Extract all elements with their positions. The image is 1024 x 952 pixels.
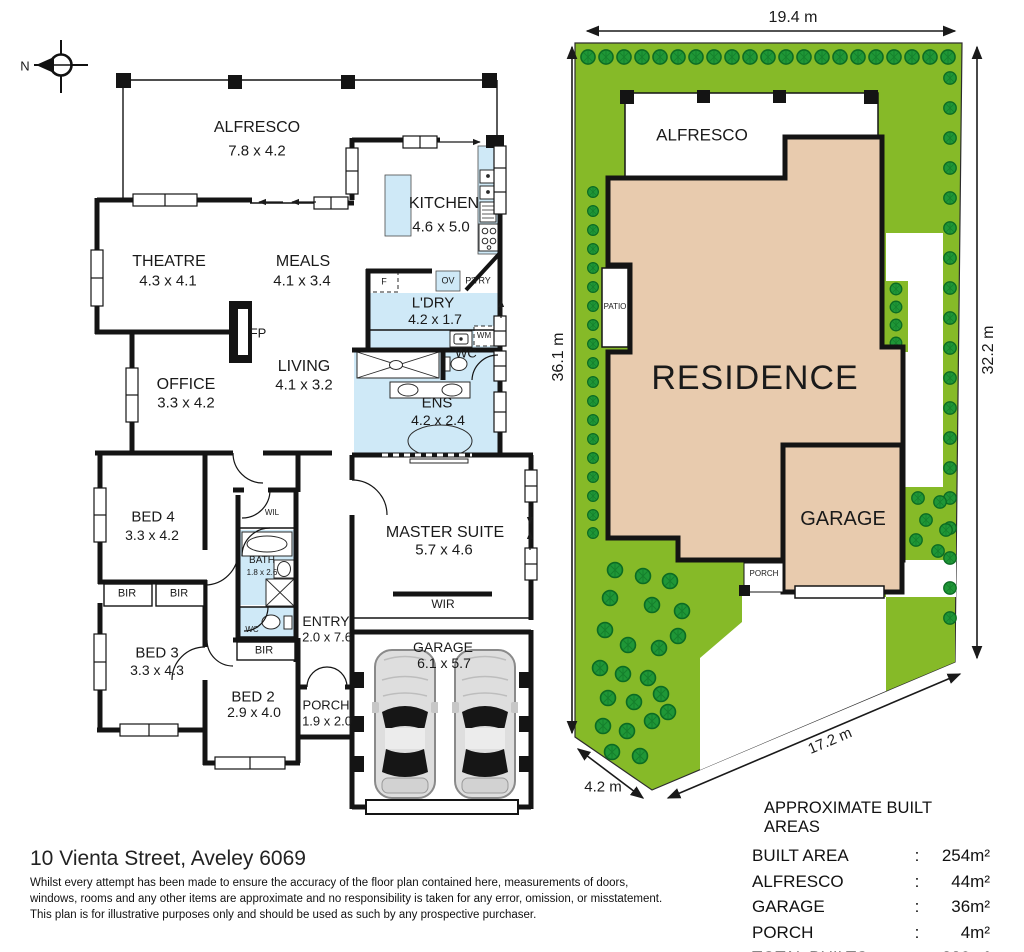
area-row-sep: : bbox=[908, 846, 926, 866]
label-wc-laundry: WC bbox=[455, 347, 477, 360]
label-oven: OV bbox=[441, 277, 454, 286]
area-row-label: PORCH bbox=[752, 923, 908, 943]
areas-table-row: GARAGE : 36m² bbox=[752, 897, 990, 917]
area-row-sep: : bbox=[908, 948, 926, 952]
floorplan-page: ALFRESCO 7.8 x 4.2 KITCHEN 4.6 x 5.0 THE… bbox=[0, 0, 1024, 952]
area-row-value: 36m² bbox=[926, 897, 990, 917]
area-row-sep: : bbox=[908, 923, 926, 943]
site-label-garage: GARAGE bbox=[800, 509, 886, 529]
site-label-alfresco: ALFRESCO bbox=[656, 127, 748, 144]
area-row-value: 338m² bbox=[926, 948, 990, 952]
car-icon bbox=[371, 650, 439, 798]
site-label-patio: PATIO bbox=[604, 303, 627, 311]
room-dims-office: 3.3 x 4.2 bbox=[157, 396, 215, 411]
room-dims-ens: 4.2 x 2.4 bbox=[411, 413, 465, 427]
room-label-garage: GARAGE bbox=[413, 640, 473, 654]
label-bir-2: BIR bbox=[170, 589, 188, 600]
site-label-porch: PORCH bbox=[750, 570, 779, 578]
alfresco-pillars bbox=[116, 73, 504, 148]
compass-north-label: N bbox=[20, 60, 29, 73]
room-label-living: LIVING bbox=[278, 359, 330, 375]
area-row-label: TOTAL BUILTS AREA bbox=[752, 948, 908, 952]
room-label-meals: MEALS bbox=[276, 254, 330, 270]
site-dim-top: 19.4 m bbox=[769, 10, 818, 26]
room-dims-garage: 6.1 x 5.7 bbox=[417, 656, 471, 670]
label-fireplace: FP bbox=[250, 327, 267, 340]
room-dims-entry: 2.0 x 7.6 bbox=[302, 631, 352, 644]
area-row-value: 254m² bbox=[926, 846, 990, 866]
label-bir-1: BIR bbox=[118, 589, 136, 600]
disclaimer-line-1: Whilst every attempt has been made to en… bbox=[30, 876, 628, 892]
label-wir: WIR bbox=[431, 598, 454, 610]
site-garage-door bbox=[795, 586, 884, 598]
areas-table-row-total: TOTAL BUILTS AREA : 338m² bbox=[752, 948, 990, 952]
room-label-bath: BATH bbox=[249, 556, 275, 566]
room-label-laundry: L'DRY bbox=[412, 296, 455, 311]
areas-table: APPROXIMATE BUILT AREAS BUILT AREA : 254… bbox=[752, 799, 990, 952]
site-dim-bottom-left: 4.2 m bbox=[584, 780, 622, 795]
room-dims-meals: 4.1 x 3.4 bbox=[273, 274, 331, 289]
areas-table-row: BUILT AREA : 254m² bbox=[752, 846, 990, 866]
room-dims-laundry: 4.2 x 1.7 bbox=[408, 312, 462, 326]
room-dims-bath: 1.8 x 2.6 bbox=[247, 569, 278, 577]
label-wil: WIL bbox=[265, 509, 279, 517]
label-wc-bath: WC bbox=[245, 626, 258, 634]
area-row-value: 44m² bbox=[926, 872, 990, 892]
room-label-alfresco: ALFRESCO bbox=[214, 120, 300, 136]
site-plan bbox=[572, 31, 977, 798]
room-dims-master: 5.7 x 4.6 bbox=[415, 543, 473, 558]
room-label-office: OFFICE bbox=[157, 377, 216, 393]
site-dim-right: 32.2 m bbox=[981, 326, 997, 375]
site-dim-left: 36.1 m bbox=[551, 333, 567, 382]
room-label-porch: PORCH bbox=[303, 699, 350, 712]
room-label-theatre: THEATRE bbox=[132, 254, 205, 270]
area-row-label: ALFRESCO bbox=[752, 872, 908, 892]
label-fridge: F bbox=[381, 278, 387, 287]
area-row-sep: : bbox=[908, 897, 926, 917]
room-dims-alfresco: 7.8 x 4.2 bbox=[228, 144, 286, 159]
room-label-entry: ENTRY bbox=[302, 614, 349, 628]
room-dims-bed4: 3.3 x 4.2 bbox=[125, 528, 179, 542]
areas-table-row: PORCH : 4m² bbox=[752, 923, 990, 943]
kitchen-island bbox=[385, 175, 411, 236]
fireplace-icon bbox=[229, 301, 252, 363]
room-dims-bed3: 3.3 x 4.3 bbox=[130, 663, 184, 677]
room-dims-porch: 1.9 x 2.0 bbox=[302, 715, 352, 728]
room-dims-living: 4.1 x 3.2 bbox=[275, 378, 333, 393]
room-label-bed4: BED 4 bbox=[131, 510, 174, 525]
room-label-ens: ENS bbox=[422, 396, 453, 411]
areas-table-row: ALFRESCO : 44m² bbox=[752, 872, 990, 892]
room-dims-kitchen: 4.6 x 5.0 bbox=[412, 220, 470, 235]
area-row-sep: : bbox=[908, 872, 926, 892]
toilet-icon-bath bbox=[262, 615, 280, 629]
room-label-kitchen: KITCHEN bbox=[409, 196, 479, 212]
address: 10 Vienta Street, Aveley 6069 bbox=[30, 845, 306, 873]
room-dims-theatre: 4.3 x 4.1 bbox=[139, 274, 197, 289]
label-pantry: P'TRY bbox=[465, 277, 491, 286]
room-dims-bed2: 2.9 x 4.0 bbox=[227, 705, 281, 719]
room-label-bed2: BED 2 bbox=[231, 690, 274, 705]
area-row-value: 4m² bbox=[926, 923, 990, 943]
disclaimer-line-2: windows, rooms and any other items are a… bbox=[30, 892, 662, 908]
area-row-label: BUILT AREA bbox=[752, 846, 908, 866]
disclaimer-line-3: This plan is for illustrative purposes o… bbox=[30, 908, 536, 924]
room-label-master: MASTER SUITE bbox=[386, 525, 504, 541]
compass-icon bbox=[34, 40, 88, 93]
areas-table-title: APPROXIMATE BUILT AREAS bbox=[752, 799, 990, 837]
car-icon bbox=[451, 650, 519, 798]
label-washing-machine: WM bbox=[477, 332, 491, 340]
tree-row-top bbox=[581, 50, 955, 64]
label-bir-3: BIR bbox=[255, 646, 273, 657]
garage-door bbox=[366, 800, 518, 814]
room-label-bed3: BED 3 bbox=[135, 646, 178, 661]
area-row-label: GARAGE bbox=[752, 897, 908, 917]
site-label-residence: RESIDENCE bbox=[651, 361, 858, 395]
